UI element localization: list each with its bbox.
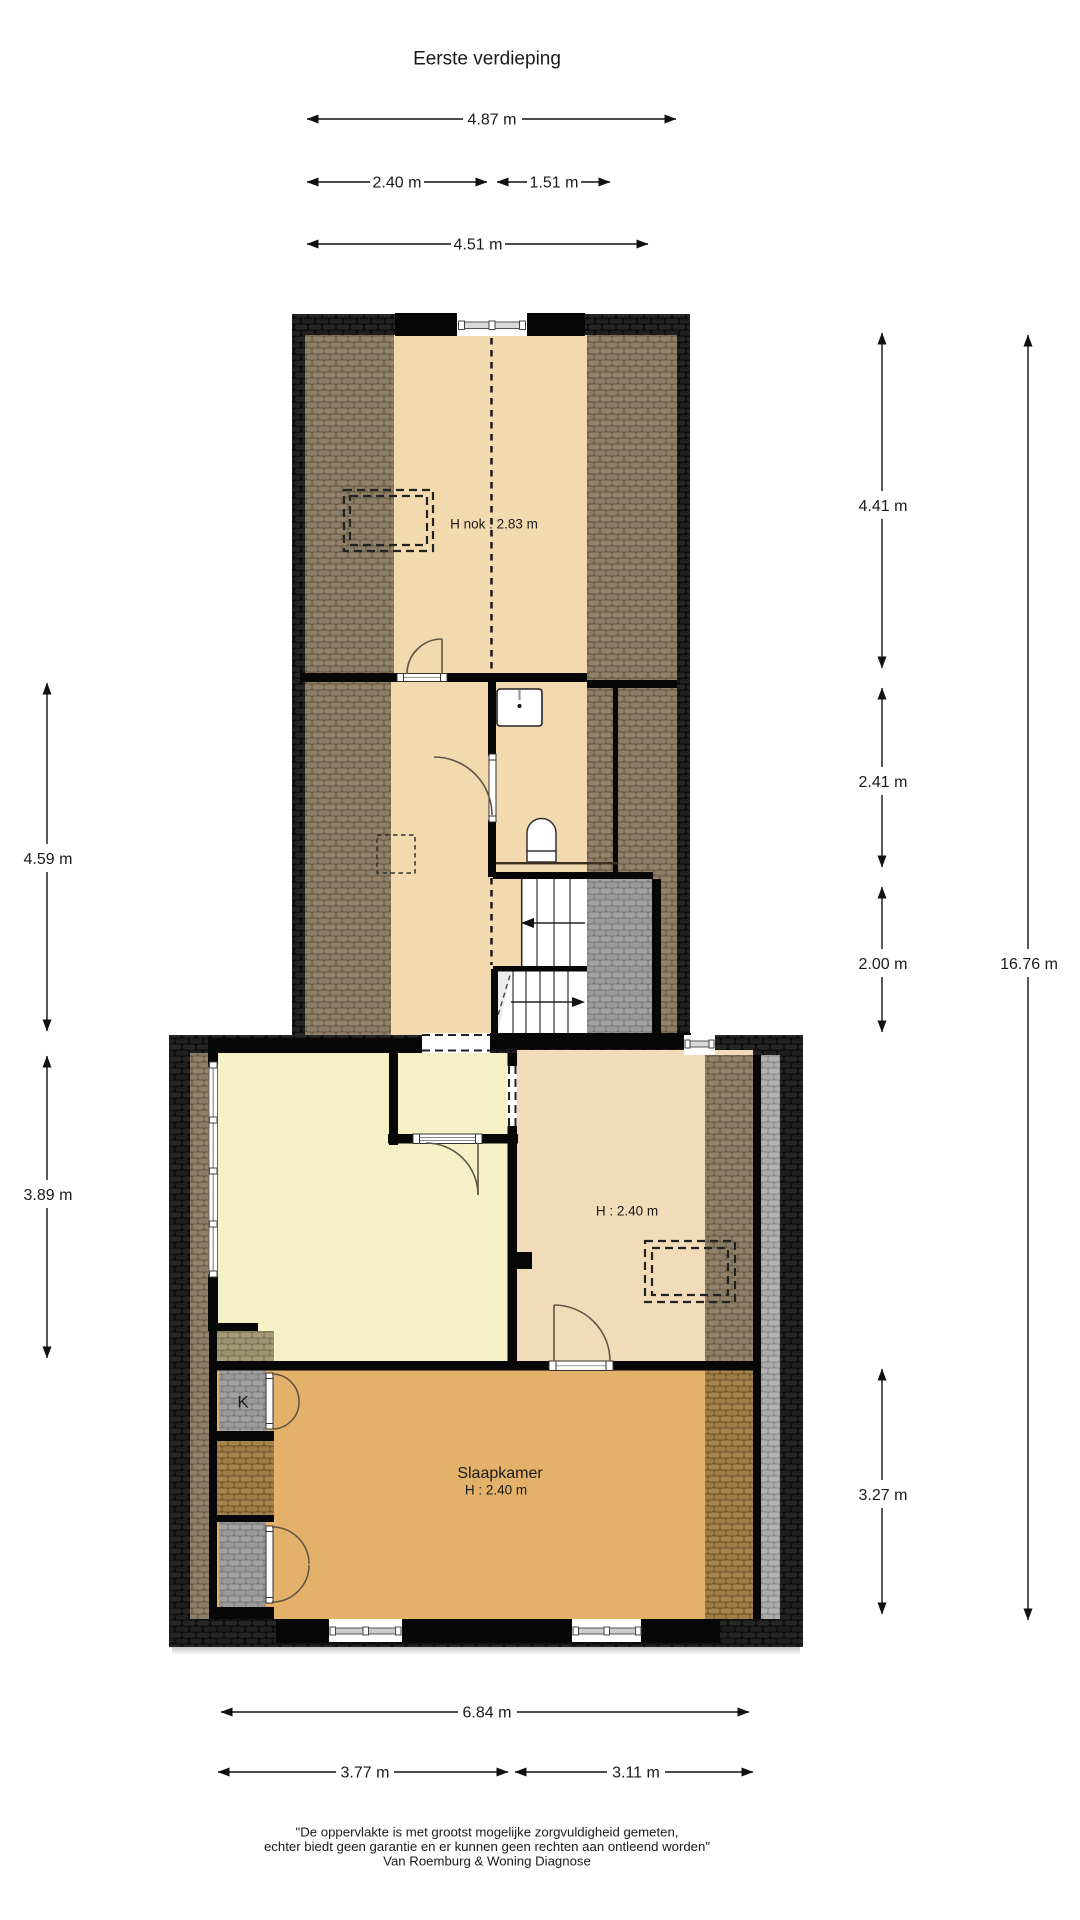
svg-text:4.41 m: 4.41 m — [859, 498, 908, 515]
svg-text:"De oppervlakte is met grootst: "De oppervlakte is met grootst mogelijke… — [296, 1825, 679, 1840]
svg-text:K: K — [237, 1393, 249, 1412]
svg-text:16.76 m: 16.76 m — [1000, 956, 1058, 973]
svg-text:6.84 m: 6.84 m — [463, 1705, 512, 1722]
svg-text:Van Roemburg & Woning Diagnose: Van Roemburg & Woning Diagnose — [383, 1854, 591, 1869]
svg-text:H : 2.40 m: H : 2.40 m — [596, 1204, 658, 1219]
svg-text:Eerste verdieping: Eerste verdieping — [413, 49, 561, 70]
svg-text:4.59 m: 4.59 m — [24, 851, 73, 868]
svg-text:3.89 m: 3.89 m — [24, 1187, 73, 1204]
svg-text:2.40 m: 2.40 m — [373, 175, 422, 192]
svg-text:2.00 m: 2.00 m — [859, 956, 908, 973]
svg-text:3.27 m: 3.27 m — [859, 1487, 908, 1504]
svg-text:2.41 m: 2.41 m — [859, 774, 908, 791]
svg-text:3.11 m: 3.11 m — [612, 1765, 660, 1782]
svg-text:1.51 m: 1.51 m — [530, 175, 579, 192]
svg-text:H nok : 2.83 m: H nok : 2.83 m — [450, 517, 538, 532]
svg-text:H : 2.40 m: H : 2.40 m — [465, 1483, 527, 1498]
svg-text:4.51 m: 4.51 m — [454, 237, 503, 254]
svg-text:echter biedt geen garantie en: echter biedt geen garantie en er kunnen … — [264, 1839, 710, 1854]
svg-text:3.77 m: 3.77 m — [341, 1765, 390, 1782]
svg-text:Slaapkamer: Slaapkamer — [457, 1465, 543, 1482]
svg-text:4.87 m: 4.87 m — [468, 112, 517, 129]
